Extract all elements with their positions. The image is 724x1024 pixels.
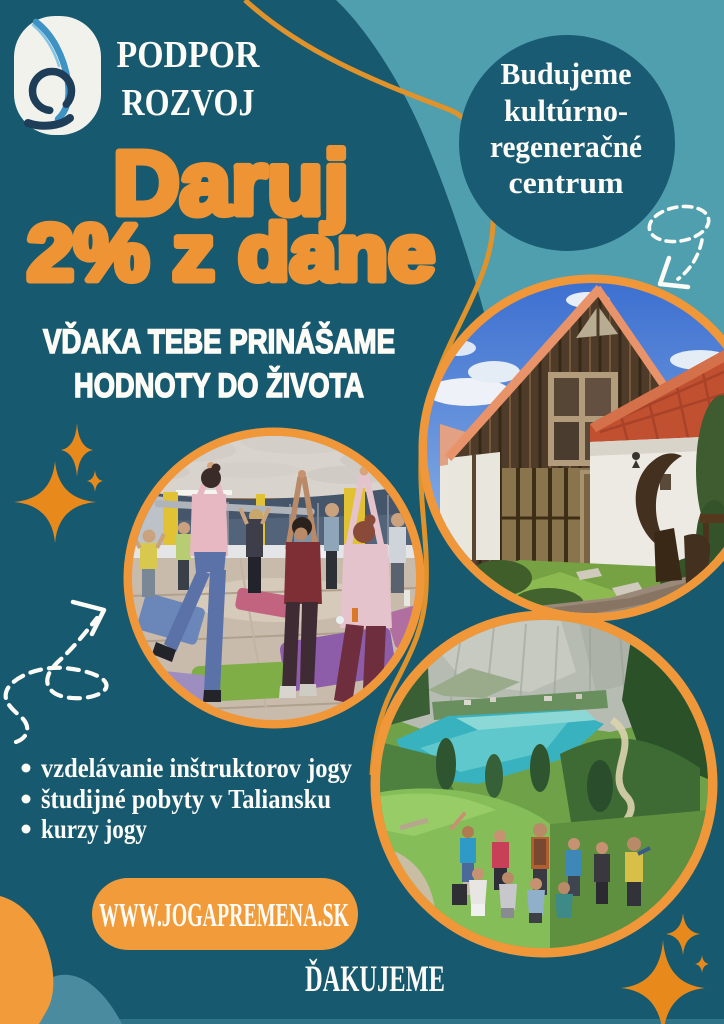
svg-text:kultúrno-: kultúrno- xyxy=(504,93,628,128)
svg-text:kurzy jogy: kurzy jogy xyxy=(41,814,147,844)
svg-text:PODPOR: PODPOR xyxy=(117,34,260,76)
svg-text:regeneračné: regeneračné xyxy=(490,129,642,164)
svg-text:ROZVOJ: ROZVOJ xyxy=(122,82,255,124)
svg-text:študijné pobyty v Taliansku: študijné pobyty v Taliansku xyxy=(41,784,331,814)
svg-text:ĎAKUJEME: ĎAKUJEME xyxy=(305,958,445,1000)
svg-text:VĎAKA TEBE PRINÁŠAME: VĎAKA TEBE PRINÁŠAME xyxy=(43,322,395,361)
svg-text:centrum: centrum xyxy=(509,165,624,200)
svg-text:2% z dane: 2% z dane xyxy=(27,208,435,297)
svg-text:WWW.JOGAPREMENA.SK: WWW.JOGAPREMENA.SK xyxy=(99,897,349,934)
svg-text:Budujeme: Budujeme xyxy=(501,56,632,91)
svg-text:vzdelávanie inštruktorov jogy: vzdelávanie inštruktorov jogy xyxy=(41,753,352,783)
svg-text:HODNOTY DO ŽIVOTA: HODNOTY DO ŽIVOTA xyxy=(74,367,364,405)
